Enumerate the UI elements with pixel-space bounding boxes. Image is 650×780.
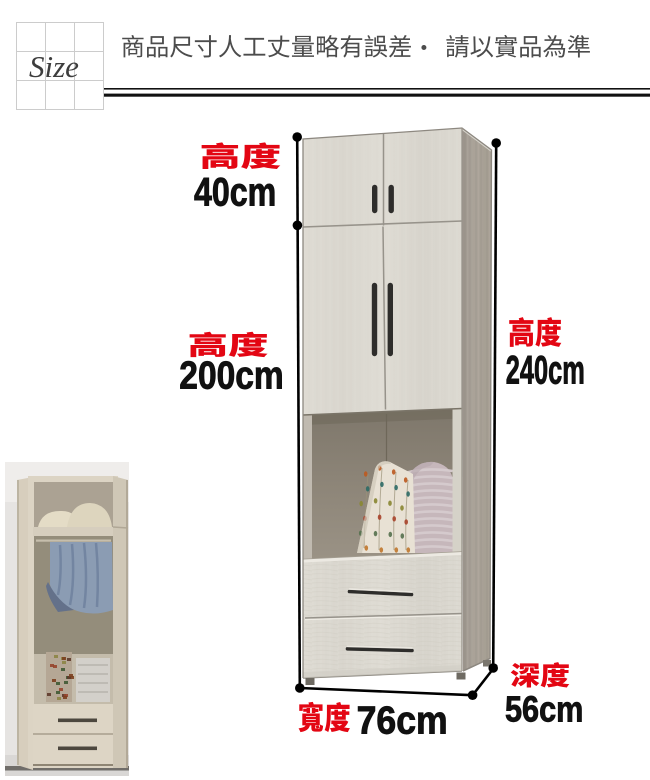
svg-text:76cm: 76cm <box>357 698 448 742</box>
svg-text:40cm: 40cm <box>194 169 276 214</box>
svg-text:56cm: 56cm <box>505 689 583 730</box>
svg-text:200cm: 200cm <box>179 353 283 397</box>
svg-text:240cm: 240cm <box>506 349 585 393</box>
svg-text:Size: Size <box>29 49 79 84</box>
